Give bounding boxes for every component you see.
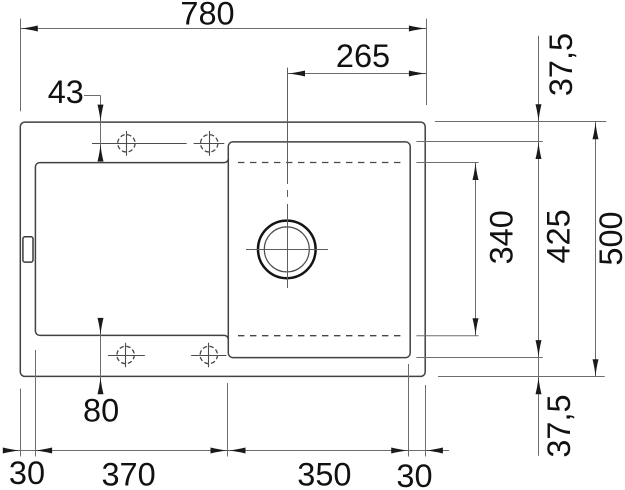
svg-text:30: 30 [396,458,432,490]
svg-text:37,5: 37,5 [543,33,579,96]
svg-text:370: 370 [101,457,155,490]
svg-text:500: 500 [593,211,625,265]
svg-text:425: 425 [540,209,576,263]
svg-text:37,5: 37,5 [541,394,577,457]
svg-text:43: 43 [48,74,84,110]
svg-text:350: 350 [297,457,351,490]
svg-text:340: 340 [484,210,520,264]
svg-text:265: 265 [336,38,390,74]
svg-text:780: 780 [180,0,234,32]
svg-text:30: 30 [9,455,45,490]
svg-text:80: 80 [83,393,119,429]
